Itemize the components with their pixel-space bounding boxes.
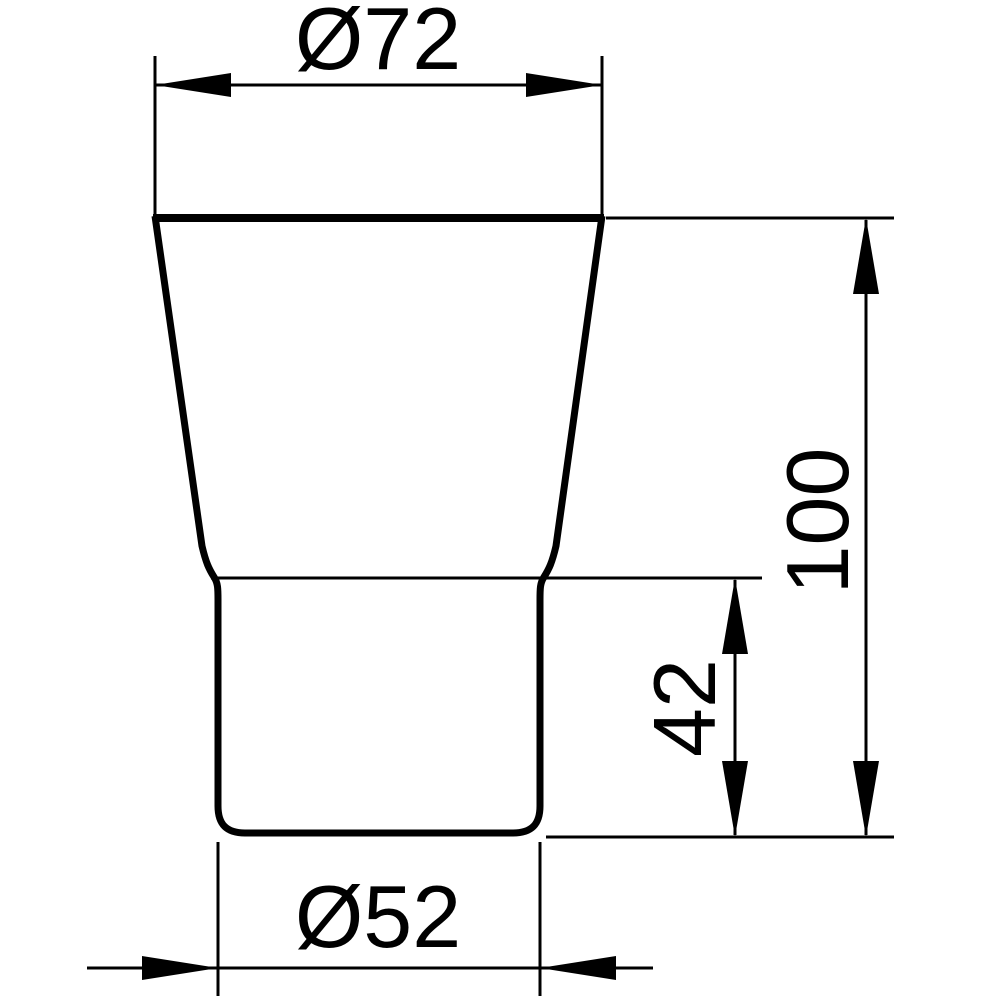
dim-base-diameter: Ø52 [87, 842, 653, 996]
arrowhead-right [540, 956, 616, 980]
arrowhead-right [526, 73, 602, 97]
arrowhead-left [155, 73, 231, 97]
dim-label-base-diameter: Ø52 [295, 867, 461, 966]
cup-outline [153, 216, 604, 833]
dim-top-diameter: Ø72 [155, 0, 602, 218]
cup-body-path [155, 216, 602, 833]
dim-label-overall-height: 100 [768, 448, 867, 595]
arrowhead-top [853, 218, 879, 294]
arrowhead-bottom [853, 761, 879, 837]
dim-label-lower-section-height: 42 [635, 659, 734, 757]
dim-lower-section-height: 42 [211, 578, 762, 837]
dim-label-top-diameter: Ø72 [295, 0, 461, 88]
technical-drawing: Ø72 100 42 Ø52 [0, 0, 1000, 1000]
arrowhead-top [722, 578, 748, 654]
arrowhead-bottom [722, 761, 748, 837]
arrowhead-left [142, 956, 218, 980]
